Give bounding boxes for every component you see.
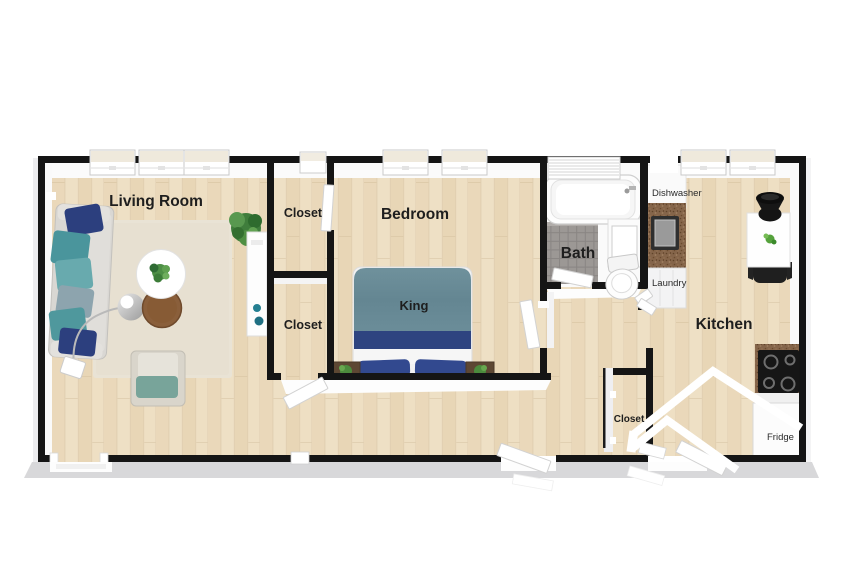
svg-text:Bedroom: Bedroom [381,206,449,223]
svg-text:Kitchen: Kitchen [696,316,753,333]
svg-text:Closet: Closet [284,318,323,332]
svg-text:Laundry: Laundry [652,278,687,289]
svg-text:Fridge: Fridge [767,432,794,443]
svg-text:Bath: Bath [561,245,595,262]
svg-text:King: King [400,298,429,313]
svg-text:Living Room: Living Room [109,193,203,210]
svg-text:Closet: Closet [614,414,645,425]
svg-text:Dishwasher: Dishwasher [652,188,702,199]
svg-text:Closet: Closet [284,206,323,220]
